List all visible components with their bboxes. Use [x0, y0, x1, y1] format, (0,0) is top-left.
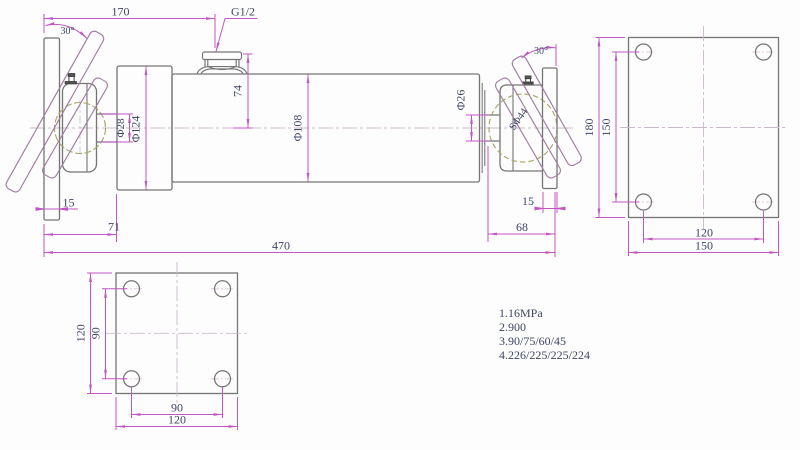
svg-text:4.226/225/225/224: 4.226/225/225/224	[499, 348, 590, 362]
svg-text:180: 180	[582, 119, 596, 137]
svg-text:470: 470	[272, 239, 290, 253]
svg-text:2.900: 2.900	[499, 320, 526, 334]
svg-text:170: 170	[112, 5, 130, 19]
svg-text:120: 120	[168, 413, 186, 427]
svg-text:Φ124: Φ124	[129, 116, 143, 143]
svg-text:30°: 30°	[61, 26, 75, 37]
svg-text:15: 15	[522, 194, 534, 208]
svg-text:G1/2: G1/2	[231, 5, 255, 19]
svg-text:71: 71	[108, 220, 120, 234]
svg-text:68: 68	[516, 220, 528, 234]
svg-text:Φ108: Φ108	[291, 115, 305, 142]
svg-text:1.16MPa: 1.16MPa	[499, 306, 543, 320]
svg-text:3.90/75/60/45: 3.90/75/60/45	[499, 334, 566, 348]
svg-text:120: 120	[74, 324, 88, 342]
svg-text:Φ26: Φ26	[454, 90, 468, 111]
svg-text:150: 150	[599, 119, 613, 137]
svg-text:120: 120	[695, 226, 713, 240]
svg-text:30°: 30°	[534, 46, 548, 57]
svg-text:SΦ44: SΦ44	[508, 106, 531, 133]
svg-text:15: 15	[63, 196, 75, 210]
svg-text:90: 90	[89, 327, 103, 339]
svg-text:Φ28: Φ28	[115, 118, 127, 138]
svg-text:150: 150	[695, 239, 713, 253]
svg-text:74: 74	[231, 85, 245, 97]
